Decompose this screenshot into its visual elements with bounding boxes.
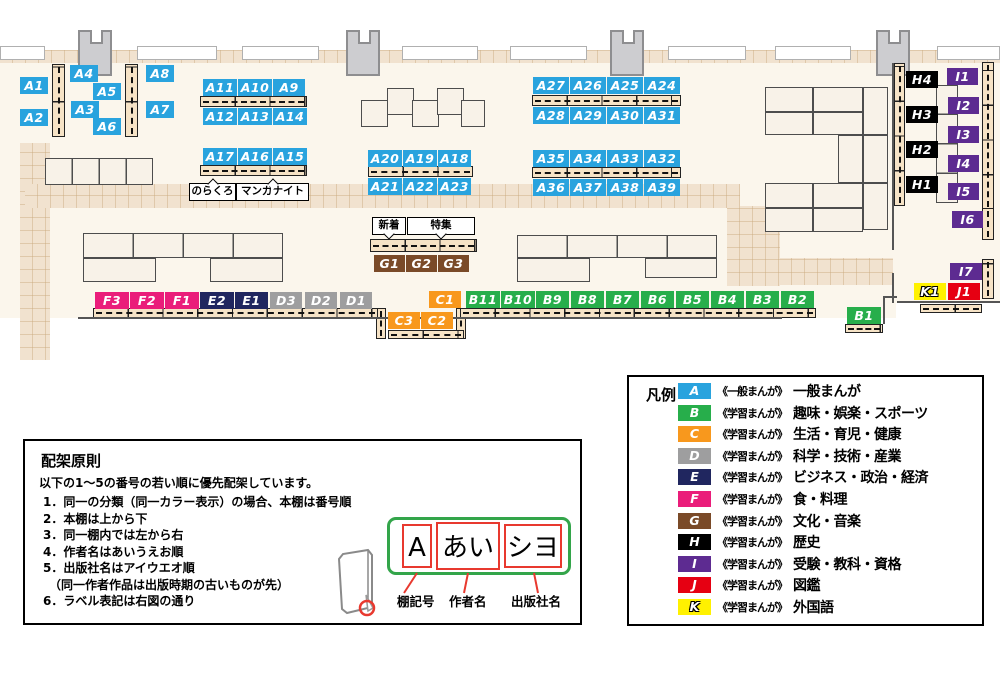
legend-category-name: 外国語 [793,597,834,617]
legend-row-c: C《学習まんが》生活・育児・健康 [678,426,928,442]
legend-category-name: 図鑑 [793,575,820,595]
legend-row-i: I《学習まんが》受験・教科・資格 [678,556,928,572]
shelf-label-a31: A31 [644,107,680,124]
shelf-label-k1: K1 [914,283,946,300]
shelf-fixture [83,258,156,282]
principles-item: 4．作者名はあいうえお順 [43,544,351,561]
shelf-label-a24: A24 [644,77,680,94]
legend-row-f: F《学習まんが》食・料理 [678,491,928,507]
shelf-strip [982,208,994,240]
legend-prefix: 《学習まんが》 [717,556,787,572]
shelf-label-a4: A4 [70,65,98,82]
wall-line [897,301,1000,303]
principles-item: 1．同一の分類（同一カラー表示）の場合、本棚は番号順 [43,494,351,511]
shelf-label-i1: I1 [947,68,978,85]
shelf-label-b6: B6 [641,291,674,308]
legend-prefix: 《学習まんが》 [717,577,787,593]
shelf-fixture [863,135,888,183]
legend-prefix: 《学習まんが》 [717,491,787,507]
annotation-label: 特集 [407,217,475,235]
shelf-strip [200,96,307,107]
legend-box: 凡例 A《一般まんが》一般まんがB《学習まんが》趣味・娯楽・スポーツC《学習まん… [627,375,984,626]
principles-title: 配架原則 [41,450,101,471]
shelf-fixture [765,87,813,112]
shelf-fixture [813,87,863,112]
shelf-label-a20: A20 [368,150,402,167]
shelf-label-h1: H1 [906,176,938,193]
shelf-label-a22: A22 [403,178,437,195]
shelf-fixture [863,87,888,135]
legend-prefix: 《学習まんが》 [717,426,787,442]
legend-chip-j: J [678,577,711,593]
shelf-strip [370,239,477,252]
pillar-notch [358,30,371,44]
window [0,46,45,60]
shelf-fixture [765,183,813,208]
manga-floor-map: A1A2A4A5A3A6A8A7A11A10A9A12A13A14A17A16A… [0,0,1000,700]
shelf-strip [894,63,905,206]
shelf-label-b10: B10 [501,291,535,308]
shelf-label-a19: A19 [403,150,437,167]
shelf-label-a15: A15 [273,148,307,165]
shelf-fixture [645,258,717,278]
shelf-label-g3: G3 [438,255,469,272]
window [775,46,851,60]
principles-list: 1．同一の分類（同一カラー表示）の場合、本棚は番号順2．本棚は上から下3．同一棚… [43,494,351,610]
shelf-strip [52,64,65,137]
legend-prefix: 《学習まんが》 [717,599,787,615]
shelf-label-g1: G1 [374,255,405,272]
shelf-label-a17: A17 [203,148,237,165]
shelf-label-f2: F2 [130,292,164,309]
legend-category-name: 文化・音楽 [793,511,861,531]
pillar [346,30,380,76]
book-icon [331,547,381,619]
legend-row-k: K《学習まんが》外国語 [678,599,928,615]
annotation-label: 新着 [372,217,406,235]
label-example: A あい シヨ [387,517,571,575]
label-part-author: あい [436,522,500,570]
shelf-label-i4: I4 [948,155,979,172]
walkway-right-horizontal [727,258,893,285]
shelf-fixture [838,135,863,183]
legend-row-e: E《学習まんが》ビジネス・政治・経済 [678,469,928,485]
legend-chip-d: D [678,448,711,464]
shelf-label-b9: B9 [536,291,569,308]
shelf-label-e1: E1 [235,292,268,309]
legend-category-name: 一般まんが [793,381,861,401]
caption-shelf-code: 棚記号 [397,591,435,610]
shelf-label-a12: A12 [203,108,237,125]
pillar-notch [90,30,103,44]
shelf-label-a14: A14 [273,108,307,125]
shelf-label-d3: D3 [270,292,302,309]
shelf-label-a5: A5 [93,83,121,100]
shelf-label-a23: A23 [438,178,471,195]
legend-row-h: H《学習まんが》歴史 [678,534,928,550]
window [242,46,319,60]
legend-prefix: 《学習まんが》 [717,448,787,464]
window [402,46,478,60]
shelf-label-i5: I5 [948,183,979,200]
pillar [610,30,644,76]
annotation-label: のらくろ [189,183,236,201]
shelf-fixture [412,100,439,127]
legend-prefix: 《一般まんが》 [717,383,787,399]
legend-chip-c: C [678,426,711,442]
window [668,46,746,60]
shelf-label-a26: A26 [570,77,606,94]
shelf-strip [368,166,473,177]
legend-chip-a: A [678,383,711,399]
shelf-label-a25: A25 [607,77,643,94]
shelf-label-a28: A28 [533,107,569,124]
shelf-fixture [813,183,863,208]
legend-chip-h: H [678,534,711,550]
wall-corner [883,296,897,324]
shelf-label-h2: H2 [906,141,938,158]
shelf-fixture [765,208,813,232]
legend-category-name: 科学・技術・産業 [793,446,901,466]
shelf-label-d2: D2 [305,292,337,309]
shelf-fixture [210,258,283,282]
shelf-label-a6: A6 [93,118,121,135]
legend-row-j: J《学習まんが》図鑑 [678,577,928,593]
legend-row-d: D《学習まんが》科学・技術・産業 [678,448,928,464]
shelf-fixture [461,100,485,127]
legend-chip-b: B [678,405,711,421]
shelf-fixture [765,112,813,135]
pillar-notch [622,30,635,44]
shelf-strip [388,330,464,339]
shelf-label-e2: E2 [200,292,234,309]
shelf-strip [125,64,138,137]
legend-category-name: 趣味・娯楽・スポーツ [793,403,928,423]
shelf-label-b11: B11 [466,291,500,308]
shelf-label-b4: B4 [711,291,744,308]
shelf-fixture [517,258,590,282]
shelf-fixture [387,88,414,115]
legend-category-name: 生活・育児・健康 [793,424,901,444]
shelf-label-h4: H4 [906,71,938,88]
legend-prefix: 《学習まんが》 [717,513,787,529]
legend-chip-e: E [678,469,711,485]
legend-title: 凡例 [646,384,676,405]
legend-row-a: A《一般まんが》一般まんが [678,383,928,399]
shelf-label-a1: A1 [20,77,48,94]
shelf-label-j1: J1 [948,283,980,300]
legend-chip-f: F [678,491,711,507]
principles-item: 5．出版社名はアイウエオ順 （同一作者作品は出版時期の古いものが先） [43,560,351,593]
shelf-fixture [863,183,888,230]
legend-rows: A《一般まんが》一般まんがB《学習まんが》趣味・娯楽・スポーツC《学習まんが》生… [678,383,928,615]
legend-row-g: G《学習まんが》文化・音楽 [678,513,928,529]
shelf-label-a11: A11 [203,79,237,96]
legend-prefix: 《学習まんが》 [717,469,787,485]
shelf-label-a21: A21 [368,178,402,195]
legend-chip-k: K [678,599,711,615]
window [510,46,587,60]
label-part-publisher: シヨ [504,524,562,568]
wall-line [892,63,894,250]
window [137,46,217,60]
shelf-label-b7: B7 [606,291,639,308]
shelf-label-i6: I6 [952,211,983,228]
shelf-label-a9: A9 [273,79,305,96]
shelf-fixture [813,208,863,232]
legend-chip-g: G [678,513,711,529]
shelf-label-b3: B3 [746,291,779,308]
shelf-label-a27: A27 [533,77,569,94]
shelf-label-a10: A10 [238,79,272,96]
principles-item: 3．同一棚内では左から右 [43,527,351,544]
shelf-strip [532,167,681,178]
shelf-label-a34: A34 [570,150,606,167]
shelf-label-g2: G2 [406,255,437,272]
shelf-fixture [361,100,388,127]
legend-category-name: 食・料理 [793,489,847,509]
shelf-label-b5: B5 [676,291,709,308]
shelf-label-c1: C1 [429,291,461,308]
shelf-label-c2: C2 [421,312,453,329]
shelf-strip [920,304,982,313]
shelf-label-i2: I2 [948,97,979,114]
shelf-label-a13: A13 [238,108,272,125]
shelf-fixture [45,158,153,185]
shelf-strip [200,165,307,176]
legend-row-b: B《学習まんが》趣味・娯楽・スポーツ [678,405,928,421]
shelf-label-h3: H3 [906,106,938,123]
pillar-notch [888,30,901,44]
shelf-label-i3: I3 [948,126,979,143]
principles-item: 6．ラベル表記は右図の通り [43,593,351,610]
shelf-label-a29: A29 [570,107,606,124]
caption-author: 作者名 [449,591,487,610]
shelf-strip [845,324,883,333]
shelf-fixture [517,235,717,258]
principles-box: 配架原則 以下の1～5の番号の若い順に優先配架しています。 1．同一の分類（同一… [23,439,582,625]
shelf-label-a18: A18 [438,150,471,167]
shelf-label-b8: B8 [571,291,604,308]
shelf-label-a30: A30 [607,107,643,124]
shelf-strip [982,62,994,210]
shelf-label-a7: A7 [146,101,174,118]
shelf-label-f1: F1 [165,292,199,309]
shelf-label-a35: A35 [533,150,569,167]
principles-intro: 以下の1～5の番号の若い順に優先配架しています。 [39,474,318,491]
legend-category-name: 受験・教科・資格 [793,554,901,574]
shelf-label-b2: B2 [781,291,814,308]
shelf-fixture [83,233,283,258]
legend-category-name: 歴史 [793,532,820,552]
legend-prefix: 《学習まんが》 [717,534,787,550]
shelf-fixture [437,88,464,115]
shelf-label-f3: F3 [95,292,129,309]
shelf-label-a32: A32 [644,150,680,167]
shelf-label-a16: A16 [238,148,272,165]
shelf-label-a2: A2 [20,109,48,126]
shelf-label-a38: A38 [607,179,643,196]
shelf-label-a8: A8 [146,65,174,82]
legend-prefix: 《学習まんが》 [717,405,787,421]
shelf-label-a37: A37 [570,179,606,196]
shelf-label-b1: B1 [847,307,881,324]
shelf-label-i7: I7 [950,263,982,280]
label-part-shelf-code: A [402,524,432,568]
principles-item: 2．本棚は上から下 [43,511,351,528]
shelf-strip [532,95,681,106]
shelf-label-a3: A3 [71,101,99,118]
shelf-label-a36: A36 [533,179,569,196]
shelf-label-a33: A33 [607,150,643,167]
annotation-label: マンガナイト [236,183,309,201]
shelf-fixture [813,112,863,135]
shelf-strip [982,259,994,299]
shelf-label-d1: D1 [340,292,372,309]
legend-chip-i: I [678,556,711,572]
shelf-label-c3: C3 [388,312,420,329]
window [937,46,1000,60]
shelf-label-a39: A39 [644,179,680,196]
caption-publisher: 出版社名 [511,591,561,610]
legend-category-name: ビジネス・政治・経済 [793,467,928,487]
